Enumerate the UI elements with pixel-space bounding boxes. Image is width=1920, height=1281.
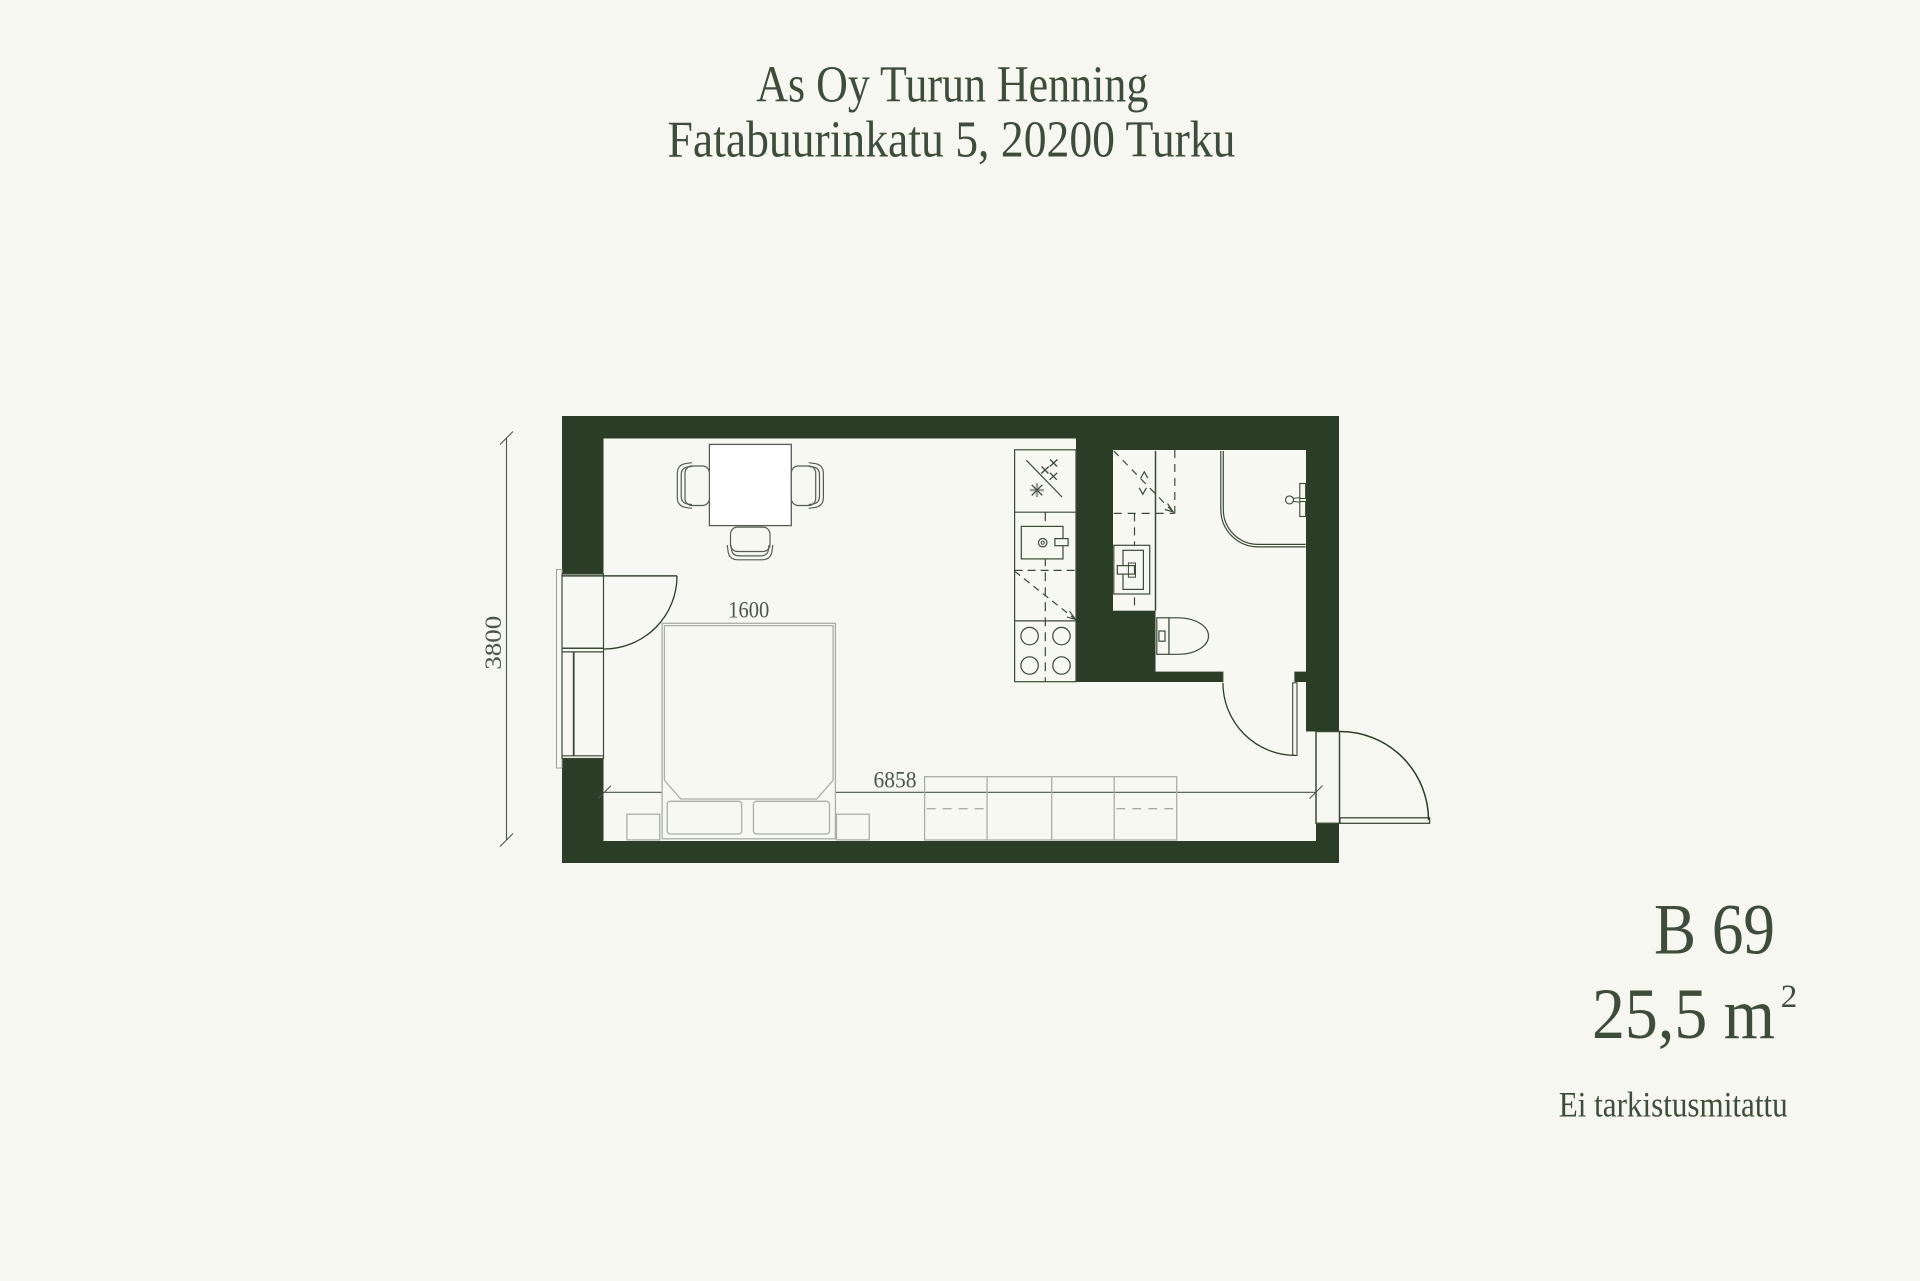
svg-text:2: 2 (1781, 979, 1798, 1015)
svg-text:Fatabuurinkatu 5, 20200 Turku: Fatabuurinkatu 5, 20200 Turku (668, 112, 1236, 169)
svg-text:25,5 m: 25,5 m (1592, 974, 1775, 1054)
svg-text:As Oy Turun Henning: As Oy Turun Henning (756, 57, 1148, 114)
svg-text:3800: 3800 (481, 616, 506, 670)
svg-text:B 69: B 69 (1654, 889, 1775, 969)
svg-text:1600: 1600 (728, 598, 769, 623)
svg-text:6858: 6858 (874, 768, 917, 793)
svg-text:Ei tarkistusmitattu: Ei tarkistusmitattu (1559, 1085, 1788, 1125)
